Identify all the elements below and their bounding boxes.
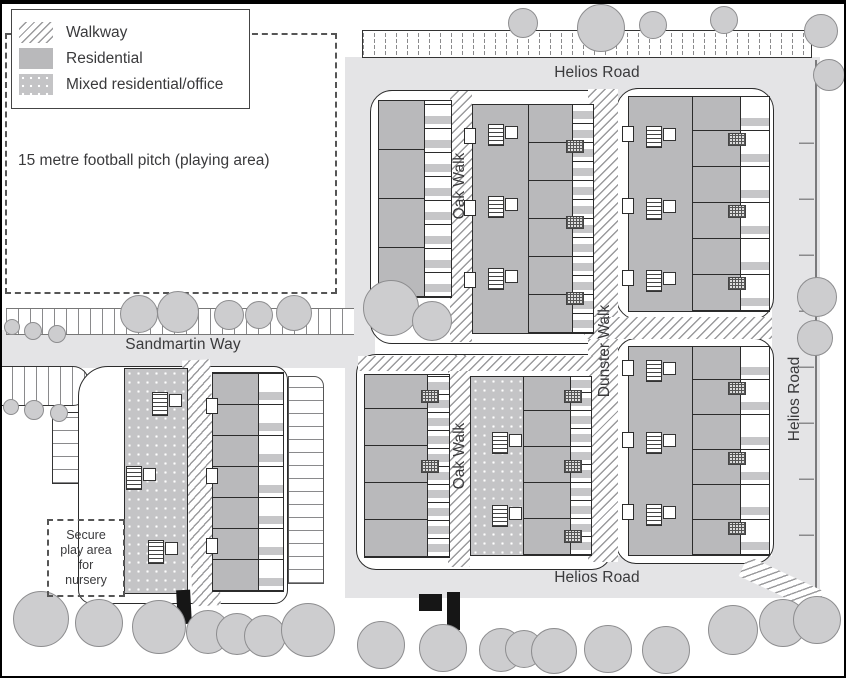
tree-icon <box>357 621 405 669</box>
stair-detail <box>646 198 676 218</box>
junction-grid-detail <box>564 460 582 473</box>
tree-icon <box>276 295 312 331</box>
walkway-hatch-swatch-icon <box>19 22 53 43</box>
entrance-marker <box>419 594 442 611</box>
tree-icon <box>363 280 419 336</box>
tree-icon <box>75 599 123 647</box>
tree-icon <box>813 59 845 91</box>
site-plan-map: 15 metre football pitch (playing area) <box>0 0 846 678</box>
entrance-notch <box>206 398 218 414</box>
tree-icon <box>710 6 738 34</box>
secure-play-line: nursery <box>49 573 123 588</box>
legend: Walkway Residential Mixed residential/of… <box>11 9 250 109</box>
entrance-notch <box>622 270 634 286</box>
junction-grid-detail <box>564 390 582 403</box>
unit-detail-column <box>424 100 452 298</box>
entrance-notch <box>206 468 218 484</box>
tree-icon <box>642 626 690 674</box>
entrance-notch <box>622 126 634 142</box>
tree-icon <box>584 625 632 673</box>
stair-detail <box>488 196 518 216</box>
junction-grid-detail <box>728 277 746 290</box>
mixed-dotted-swatch-icon <box>19 74 53 95</box>
stair-detail <box>152 392 182 414</box>
bush-icon <box>3 399 19 415</box>
bush-icon <box>50 404 68 422</box>
stair-detail <box>646 504 676 524</box>
stair-detail <box>646 126 676 146</box>
stair-detail <box>492 505 522 525</box>
tree-icon <box>508 8 538 38</box>
tree-icon <box>281 603 335 657</box>
tree-icon <box>13 591 69 647</box>
bush-icon <box>24 400 44 420</box>
tree-icon <box>793 596 841 644</box>
tree-icon <box>214 300 244 330</box>
legend-item-residential: Residential <box>19 48 249 69</box>
dunster-walk-label: Dunster Walk <box>596 281 614 421</box>
entrance-notch <box>206 538 218 554</box>
tree-icon <box>531 628 577 674</box>
junction-grid-detail <box>728 522 746 535</box>
helios-road-bottom-label: Helios Road <box>517 569 677 587</box>
stair-detail <box>488 124 518 144</box>
mixed-use-building <box>470 376 525 556</box>
oak-walk-lower-label: Oak Walk <box>451 386 469 526</box>
legend-item-walkway: Walkway <box>19 22 249 43</box>
parking-strip-center <box>288 376 324 584</box>
stair-detail <box>488 268 518 288</box>
entrance-notch <box>622 198 634 214</box>
unit-detail-column <box>258 372 284 592</box>
tree-icon <box>157 291 199 333</box>
junction-grid-detail <box>566 140 584 153</box>
tree-icon <box>245 301 273 329</box>
residential-building <box>212 372 260 592</box>
junction-grid-detail <box>728 382 746 395</box>
junction-grid-detail <box>566 216 584 229</box>
bush-icon <box>24 322 42 340</box>
residential-swatch-icon <box>19 48 53 69</box>
junction-grid-detail <box>728 133 746 146</box>
helios-road-top-label: Helios Road <box>517 64 677 82</box>
stair-detail <box>646 360 676 380</box>
junction-grid-detail <box>728 452 746 465</box>
bush-icon <box>48 325 66 343</box>
football-pitch-label: 15 metre football pitch (playing area) <box>18 152 270 170</box>
tree-icon <box>639 11 667 39</box>
junction-grid-detail <box>564 530 582 543</box>
tree-icon <box>132 600 186 654</box>
entrance-notch <box>622 432 634 448</box>
legend-label: Residential <box>66 50 143 68</box>
tree-icon <box>244 615 286 657</box>
oak-walk-upper-label: Oak Walk <box>451 116 469 256</box>
stair-detail <box>126 466 156 488</box>
residential-building <box>364 374 429 558</box>
entrance-notch <box>464 272 476 288</box>
secure-play-line: Secure <box>49 528 123 543</box>
secure-play-area: Secure play area for nursery <box>47 519 125 597</box>
tree-icon <box>419 624 467 672</box>
entrance-notch <box>622 504 634 520</box>
tree-icon <box>708 605 758 655</box>
tree-icon <box>412 301 452 341</box>
sandmartin-way-label: Sandmartin Way <box>103 336 263 354</box>
legend-label: Mixed residential/office <box>66 76 223 94</box>
tree-icon <box>797 277 837 317</box>
junction-grid-detail <box>728 205 746 218</box>
bush-icon <box>4 319 20 335</box>
tree-icon <box>120 295 158 333</box>
stair-detail <box>148 540 178 562</box>
junction-grid-detail <box>421 460 439 473</box>
tree-icon <box>804 14 838 48</box>
walkway-band-center <box>358 356 608 371</box>
tree-icon <box>577 4 625 52</box>
junction-grid-detail <box>421 390 439 403</box>
secure-play-line: play area <box>49 543 123 558</box>
entrance-notch <box>622 360 634 376</box>
junction-grid-detail <box>566 292 584 305</box>
stair-detail <box>646 432 676 452</box>
legend-label: Walkway <box>66 24 127 42</box>
legend-item-mixed: Mixed residential/office <box>19 74 249 95</box>
stair-detail <box>492 432 522 452</box>
stair-detail <box>646 270 676 290</box>
residential-building <box>378 100 426 298</box>
secure-play-line: for <box>49 558 123 573</box>
helios-road-right-label: Helios Road <box>786 329 804 469</box>
